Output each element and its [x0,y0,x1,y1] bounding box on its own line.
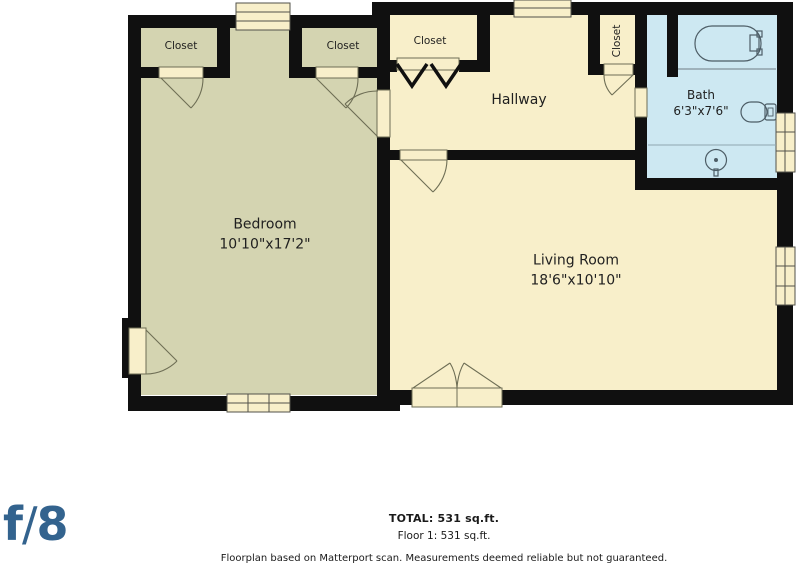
closet-label-hallway: Closet [414,35,447,47]
floorplan-page: Bedroom 10'10"x17'2" Living Room 18'6"x1… [0,0,800,565]
wall-closet-b-left [289,28,302,78]
living-right-window [776,247,795,305]
wall-left-bump [122,318,129,378]
wall-top-right [372,2,793,15]
closet-label-bedroom-left: Closet [165,40,198,52]
living-room-name: Living Room [530,251,621,271]
bath-name: Bath [673,87,728,103]
bath-right-window [776,113,795,172]
bifold-track [397,58,459,70]
wall-vert-closet-stub-left [588,64,604,75]
wall-hall-closet-stub-right [459,60,490,72]
bedroom-name: Bedroom [219,215,310,235]
closet-label-bedroom-right: Closet [327,40,360,52]
bedroom-label: Bedroom 10'10"x17'2" [219,215,310,254]
bath-label: Bath 6'3"x7'6" [673,87,728,119]
total-area-text: TOTAL: 531 sq.ft. [88,512,800,525]
hallway-label: Hallway [491,91,546,111]
closet-label-hallway-vertical: Closet [611,25,623,58]
bath-dims: 6'3"x7'6" [673,103,728,119]
bedroom-area [141,28,377,395]
wall-hall-closet-stub-left [385,60,397,72]
wall-right [777,2,793,405]
wall-closet-a-sill-right [203,67,230,78]
bedroom-left-door-leaf [129,328,146,374]
disclaimer-text: Floorplan based on Matterport scan. Meas… [88,553,800,564]
vert-closet-opening [604,64,633,75]
hallway-living-opening [400,150,447,160]
wall-closet-a-sill-left [141,67,160,78]
bedroom-bottom-window [227,394,290,412]
f8-logo: f/8 [3,499,68,550]
wall-vert-closet-stub-right [633,64,647,75]
bedroom-dims: 10'10"x17'2" [219,235,310,255]
logo-eight: 8 [37,497,68,551]
wall-bath-bottom [635,178,777,190]
logo-f: f [3,497,22,551]
wall-tub-stub [667,15,678,77]
bedroom-doorway [377,90,390,137]
closet-b-opening [316,67,358,78]
wall-closet-b-sill-left [302,67,316,78]
floor-area-text: Floor 1: 531 sq.ft. [88,530,800,542]
floorplan-drawing [0,0,800,470]
sink-drain [715,159,718,162]
living-room-dims: 18'6"x10'10" [530,271,621,291]
living-room-label: Living Room 18'6"x10'10" [530,251,621,290]
footer: TOTAL: 531 sq.ft. Floor 1: 531 sq.ft. Fl… [88,512,800,564]
bedroom-top-window [236,3,290,30]
closet-a-opening [159,67,203,78]
logo-slash: / [22,497,37,551]
hallway-top-window [514,0,571,17]
bath-doorway [635,88,647,117]
